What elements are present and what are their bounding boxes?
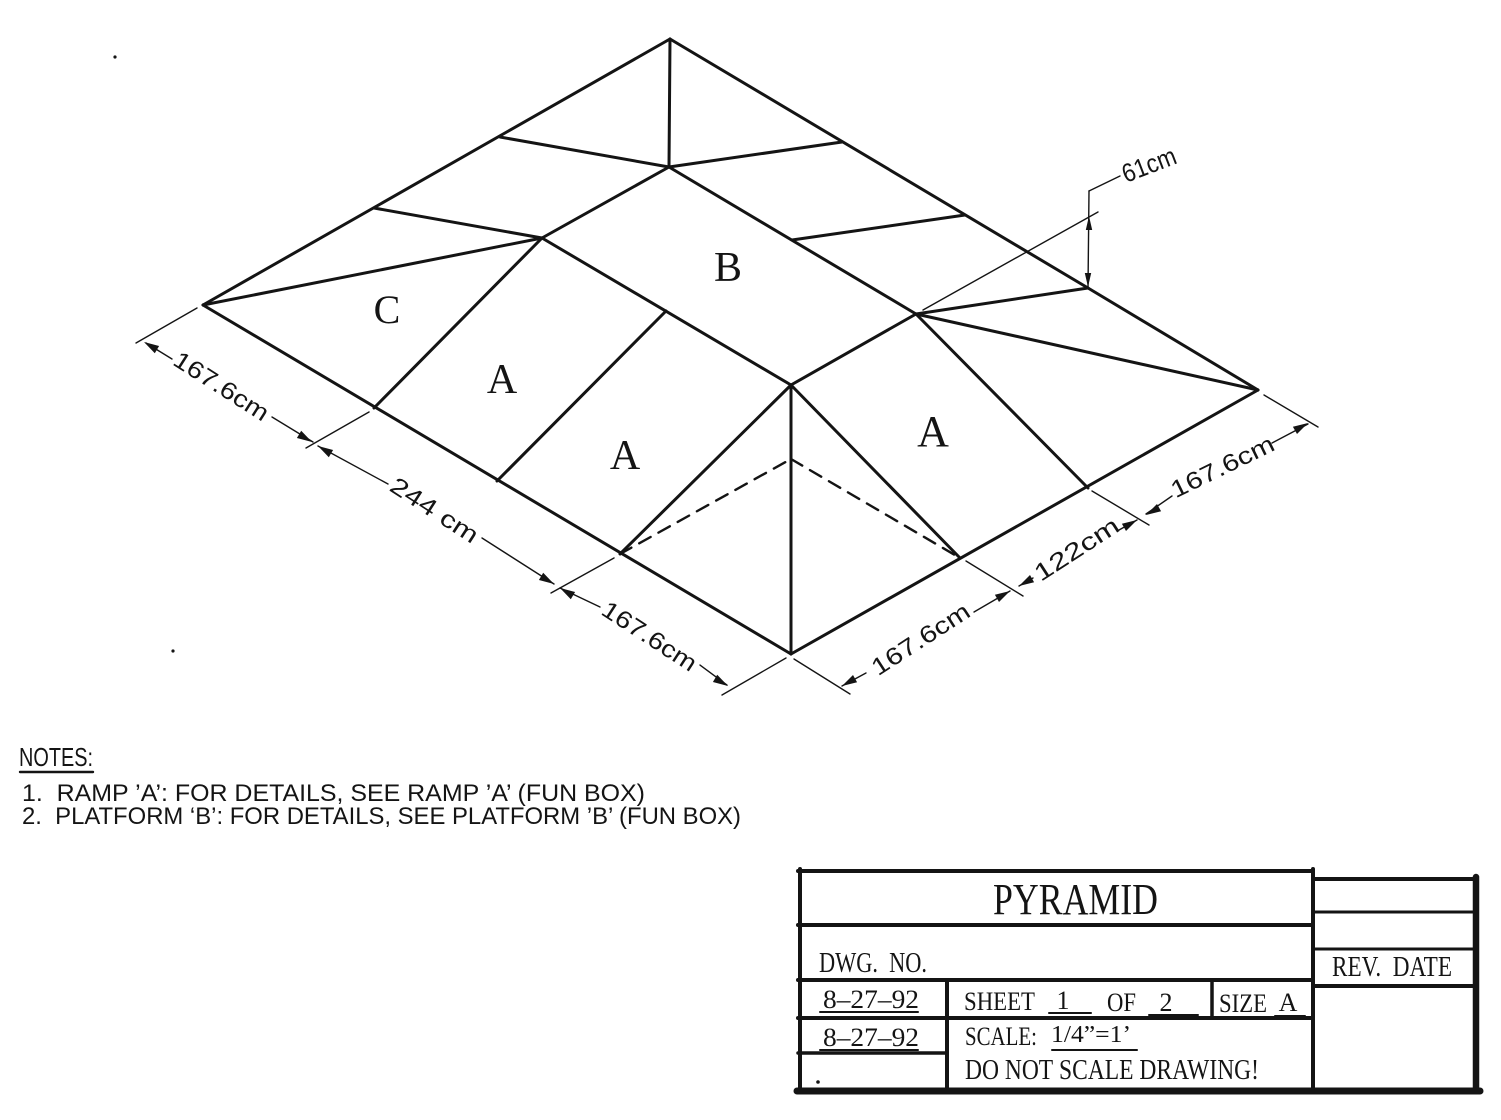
- svg-text:OF: OF: [1107, 988, 1136, 1017]
- svg-text:A: A: [1279, 988, 1298, 1017]
- svg-text:2. PLATFORM ‘B’: FOR DETAILS,: 2. PLATFORM ‘B’: FOR DETAILS, SEE PLATFO…: [22, 803, 741, 830]
- svg-text:C: C: [374, 287, 401, 332]
- svg-text:SHEET: SHEET: [964, 987, 1035, 1016]
- svg-text:A: A: [487, 357, 518, 403]
- svg-text:A: A: [917, 407, 949, 456]
- svg-text:8–27–92: 8–27–92: [823, 1023, 919, 1052]
- svg-text:REV. DATE: REV. DATE: [1332, 952, 1452, 983]
- svg-text:DO NOT SCALE DRAWING!: DO NOT SCALE DRAWING!: [965, 1055, 1259, 1086]
- svg-text:1: 1: [1057, 986, 1070, 1015]
- svg-text:8–27–92: 8–27–92: [823, 985, 919, 1014]
- svg-text:B: B: [714, 245, 742, 291]
- svg-text:NOTES:: NOTES:: [19, 742, 93, 772]
- svg-text:A: A: [610, 433, 641, 479]
- svg-text:SIZE: SIZE: [1219, 989, 1267, 1018]
- svg-text:PYRAMID: PYRAMID: [993, 875, 1158, 924]
- svg-text:SCALE:: SCALE:: [965, 1022, 1037, 1051]
- svg-text:DWG. NO.: DWG. NO.: [819, 948, 927, 979]
- svg-text:2: 2: [1160, 988, 1173, 1017]
- svg-text:1/4”=1’: 1/4”=1’: [1051, 1022, 1131, 1048]
